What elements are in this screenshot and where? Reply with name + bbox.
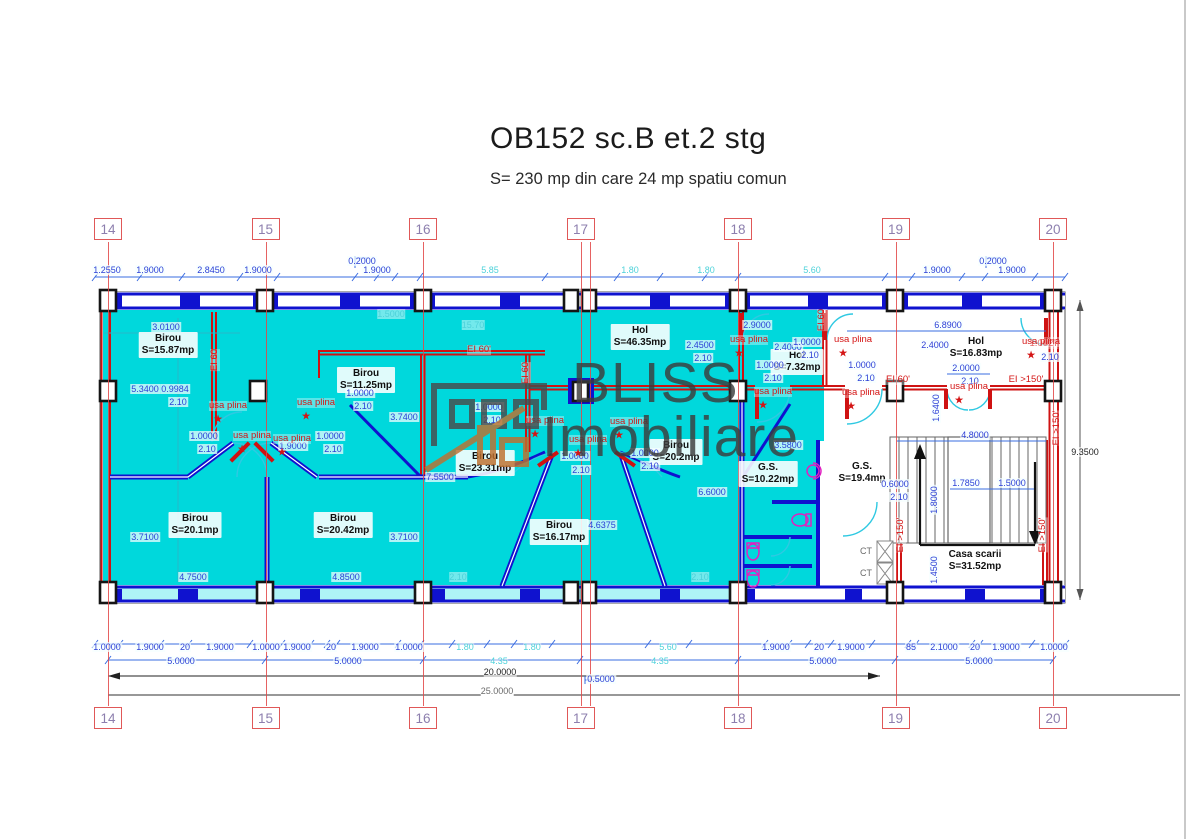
dim-label: 1.9000: [350, 642, 380, 652]
usa-plina-label: usa plina: [730, 335, 768, 345]
dim-label: 20.0000: [484, 667, 517, 677]
dim-label: 2.10: [449, 572, 467, 582]
grid-marker-top: 17: [567, 218, 595, 240]
room-name: Birou: [172, 513, 219, 525]
dim-label: 1.80: [621, 265, 639, 275]
dim-label: 1.9000: [761, 642, 791, 652]
room-name: Birou: [142, 333, 195, 345]
dim-label: 1.2550: [92, 265, 122, 275]
dim-label: 2.8450: [196, 265, 226, 275]
grid-axis-line: [108, 242, 109, 706]
fire-rating-label: EI 60': [886, 375, 910, 385]
dim-label: 0.5000: [586, 674, 616, 684]
dim-label: 1.6400: [931, 393, 941, 423]
grid-marker-bottom: 16: [409, 707, 437, 729]
dim-label: CT: [860, 546, 872, 556]
fire-rating-label: EI 60: [210, 349, 220, 371]
watermark-brand-2: Imobiliare: [542, 404, 799, 470]
room-name: G.S.: [839, 461, 886, 473]
grid-marker-bottom: 15: [252, 707, 280, 729]
room-label: HolS=16.83mp: [947, 335, 1006, 361]
usa-plina-star: ★: [1026, 349, 1036, 362]
room-name: Birou: [340, 368, 392, 380]
grid-marker-bottom: 18: [724, 707, 752, 729]
dim-label: 2.10: [197, 444, 217, 454]
dim-label: 1.5000: [997, 478, 1027, 488]
dim-label: 1.5000: [377, 309, 405, 319]
grid-marker-top: 16: [409, 218, 437, 240]
watermark: BLISS Imobiliare: [424, 358, 824, 488]
usa-plina-star: ★: [237, 443, 247, 456]
dim-label: 1.9000: [997, 265, 1027, 275]
room-area: S=16.83mp: [950, 348, 1003, 360]
fire-rating-label: EI 60': [467, 345, 491, 355]
dim-label: CT: [860, 568, 872, 578]
dim-label: 5.60: [803, 265, 821, 275]
dim-label: 4.8500: [331, 572, 361, 582]
dim-label: 1.0000: [189, 431, 219, 441]
dim-label: 1.9000: [243, 265, 273, 275]
dim-label: 5.3400: [130, 384, 160, 394]
dim-label: 2.10: [168, 397, 188, 407]
room-area: S=15.87mp: [142, 345, 195, 357]
dim-label: 1.0000: [792, 337, 822, 347]
room-name: Hol: [950, 336, 1003, 348]
fire-rating-label: EI >150': [1009, 375, 1044, 385]
dim-label: 2.0000: [951, 363, 981, 373]
fire-rating-label: EI 60: [817, 309, 827, 331]
dim-label: 1.80: [697, 265, 715, 275]
grid-marker-top: 20: [1039, 218, 1067, 240]
dim-label: 2.10: [323, 444, 343, 454]
dim-label: 1.80: [456, 642, 474, 652]
grid-marker-top: 19: [882, 218, 910, 240]
dim-label: 5.0000: [333, 656, 363, 666]
dim-label: 4.35: [490, 656, 508, 666]
dim-label: 4.8000: [960, 430, 990, 440]
dim-label: 6.6000: [697, 487, 727, 497]
usa-plina-star: ★: [838, 347, 848, 360]
room-label: BirouS=16.17mp: [530, 519, 589, 545]
dim-label: 1.7850: [951, 478, 981, 488]
dim-label: 1.9000: [362, 265, 392, 275]
dim-label: 20: [969, 642, 981, 652]
usa-plina-label: usa plina: [950, 382, 988, 392]
dim-label: 85: [905, 642, 917, 652]
dim-label: 2.10: [889, 492, 909, 502]
usa-plina-label: usa plina: [834, 335, 872, 345]
room-label: Casa scariiS=31.52mp: [946, 548, 1005, 574]
dim-label: 20: [325, 642, 337, 652]
dim-label: 5.0000: [808, 656, 838, 666]
dim-label: 4.7500: [178, 572, 208, 582]
dim-label: 2.10: [353, 401, 373, 411]
usa-plina-label: usa plina: [1022, 337, 1060, 347]
dim-label: 1.0000: [1039, 642, 1069, 652]
dim-label: 1.9000: [135, 642, 165, 652]
dim-label: 6.8900: [933, 320, 963, 330]
grid-marker-bottom: 19: [882, 707, 910, 729]
dim-label: 2.10: [691, 572, 709, 582]
grid-axis-line: [266, 242, 267, 706]
dim-label: 20: [813, 642, 825, 652]
dim-label: 1.9000: [922, 265, 952, 275]
room-name: Hol: [614, 325, 667, 337]
dim-label: 0.6000: [880, 479, 910, 489]
room-label: BirouS=20.42mp: [314, 512, 373, 538]
dim-label: 1.0000: [847, 360, 877, 370]
grid-marker-bottom: 14: [94, 707, 122, 729]
dim-label: 9.3500: [1071, 447, 1099, 457]
dim-label: 1.0000: [345, 388, 375, 398]
dim-label: 3.7100: [130, 532, 160, 542]
dim-label: 5.85: [481, 265, 499, 275]
dim-label: 1.8000: [929, 485, 939, 515]
fire-rating-label: EI >150': [1052, 411, 1062, 446]
usa-plina-label: usa plina: [297, 398, 335, 408]
usa-plina-star: ★: [277, 446, 287, 459]
dim-label: 4.35: [651, 656, 669, 666]
grid-axis-line: [896, 242, 897, 706]
dim-label: 0.9984: [160, 384, 190, 394]
usa-plina-label: usa plina: [209, 401, 247, 411]
grid-marker-top: 15: [252, 218, 280, 240]
dim-label: 3.0100: [151, 322, 181, 332]
dim-label: 1.80: [523, 642, 541, 652]
grid-axis-line: [1053, 242, 1054, 706]
dim-label: 1.4500: [929, 555, 939, 585]
room-area: S=46.35mp: [614, 337, 667, 349]
dim-label: 1.9000: [991, 642, 1021, 652]
room-area: S=19.4mp: [839, 473, 886, 485]
room-label: HolS=46.35mp: [611, 324, 670, 350]
floorplan-page: OB152 sc.B et.2 stg S= 230 mp din care 2…: [0, 0, 1200, 839]
fire-rating-label: EI >150': [1038, 518, 1048, 553]
dim-label: 1.9000: [205, 642, 235, 652]
dim-label: 1.9000: [135, 265, 165, 275]
dim-label: 1.0000: [394, 642, 424, 652]
dim-label: 25.0000: [481, 686, 514, 696]
dim-label: 2.9000: [742, 320, 772, 330]
usa-plina-star: ★: [213, 413, 223, 426]
room-name: Casa scarii: [949, 549, 1002, 561]
fire-rating-label: EI >150': [896, 518, 906, 553]
dim-label: 1.9000: [282, 642, 312, 652]
dim-label: 5.60: [659, 642, 677, 652]
usa-plina-label: usa plina: [273, 434, 311, 444]
dim-label: 2.1000: [929, 642, 959, 652]
staircase: [890, 437, 1046, 545]
usa-plina-star: ★: [301, 410, 311, 423]
room-label: BirouS=15.87mp: [139, 332, 198, 358]
usa-plina-label: usa plina: [233, 431, 271, 441]
room-area: S=16.17mp: [533, 532, 586, 544]
room-name: Birou: [533, 520, 586, 532]
dim-label: 3.7400: [389, 412, 419, 422]
dim-label: 1.0000: [251, 642, 281, 652]
grid-marker-top: 18: [724, 218, 752, 240]
dim-label: 3.7100: [389, 532, 419, 542]
usa-plina-star: ★: [846, 400, 856, 413]
dim-label: 2.10: [1040, 352, 1060, 362]
dim-label: 1.0000: [92, 642, 122, 652]
dim-label: 20: [179, 642, 191, 652]
grid-marker-bottom: 20: [1039, 707, 1067, 729]
room-label: BirouS=20.1mp: [169, 512, 222, 538]
room-name: Birou: [317, 513, 370, 525]
usa-plina-label: usa plina: [842, 388, 880, 398]
dim-label: 2.10: [856, 373, 876, 383]
dim-label: 2.4000: [920, 340, 950, 350]
dim-label: 2.4500: [685, 340, 715, 350]
ct-boxes: [877, 541, 893, 584]
room-area: S=31.52mp: [949, 561, 1002, 573]
room-area: S=20.42mp: [317, 525, 370, 537]
dim-label: 1.9000: [836, 642, 866, 652]
grid-marker-bottom: 17: [567, 707, 595, 729]
grid-marker-top: 14: [94, 218, 122, 240]
dim-label: 4.6375: [587, 520, 617, 530]
usa-plina-star: ★: [954, 394, 964, 407]
dim-label: 1.0000: [315, 431, 345, 441]
dim-label: 15.70: [462, 320, 485, 330]
dim-label: 5.0000: [166, 656, 196, 666]
dim-label: 5.0000: [964, 656, 994, 666]
room-area: S=20.1mp: [172, 525, 219, 537]
